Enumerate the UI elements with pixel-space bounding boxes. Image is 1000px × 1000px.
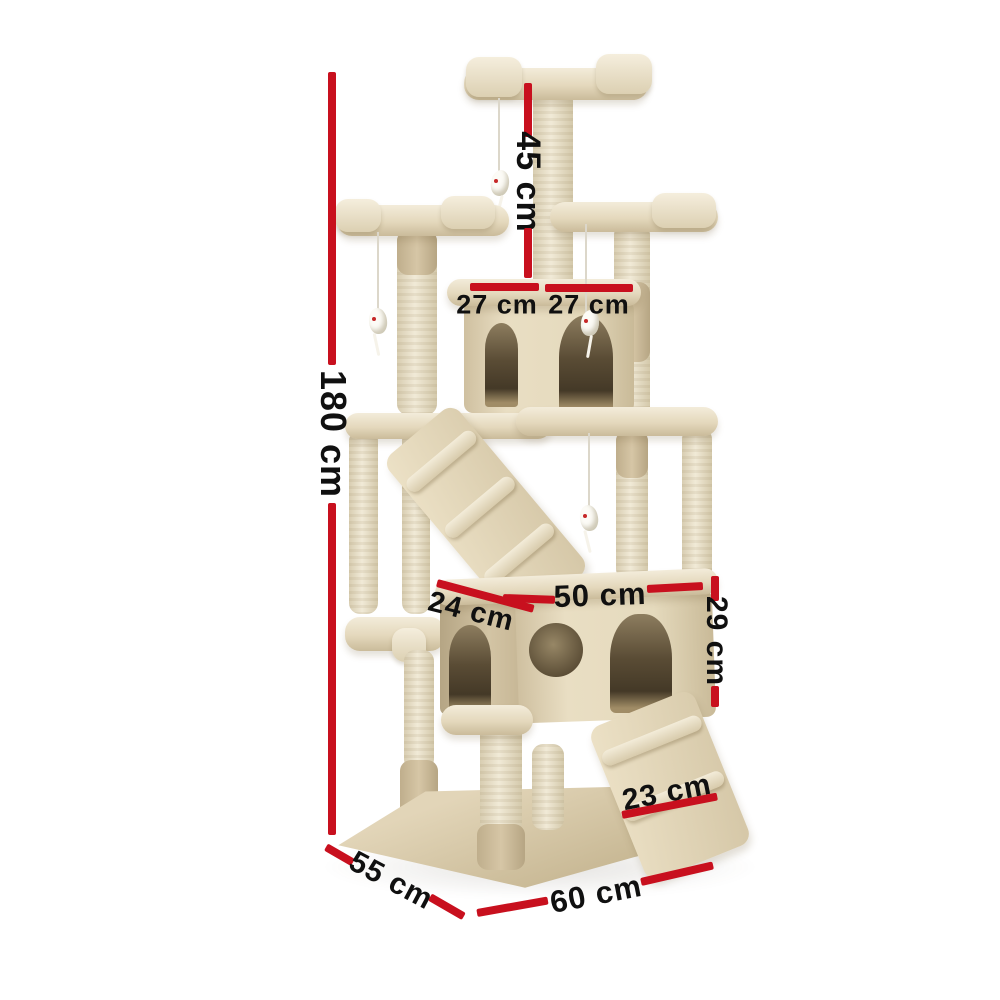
scratching-post-base-center — [480, 722, 522, 834]
right-perch-bumper-right — [652, 193, 716, 228]
scratching-post-mid-right-b — [682, 428, 712, 582]
dim-line-total-height-upper — [328, 72, 336, 365]
hanging-mouse-toy — [366, 308, 390, 358]
condo-entrance-side — [449, 625, 491, 714]
condo-entrance-left — [485, 323, 518, 407]
condo-step — [441, 705, 533, 735]
scratching-post-base-right — [532, 744, 564, 830]
dim-label-perch-right-width: 27 cm — [548, 292, 630, 319]
toy-string — [588, 433, 590, 507]
mouse-eye — [372, 317, 376, 321]
post-plush-sock — [477, 824, 525, 870]
ramp-cleat — [442, 474, 519, 542]
mouse-tail — [583, 530, 591, 553]
ramp-cleat — [403, 427, 480, 495]
toy-string — [498, 98, 500, 173]
dim-line-top-post-lower — [524, 228, 532, 278]
mouse-tail — [373, 333, 381, 356]
mouse-eye — [584, 319, 588, 323]
dim-label-perch-left-width: 27 cm — [456, 292, 538, 319]
dim-label-condo-width: 50 cm — [553, 578, 647, 612]
left-perch-bumper-mid — [441, 196, 495, 229]
left-perch-bumper-left — [335, 199, 381, 232]
dim-label-total-height: 180 cm — [315, 370, 351, 498]
post-plush-band — [616, 430, 648, 478]
mid-platform-right — [516, 407, 718, 436]
toy-string — [377, 232, 379, 310]
product-dimension-image: 180 cm 45 cm 27 cm 27 cm 24 cm 50 cm 29 … — [0, 0, 1000, 1000]
mouse-body — [368, 307, 389, 335]
top-perch-bumper-left — [466, 57, 522, 97]
peek-hole — [529, 623, 583, 677]
post-plush-band — [397, 230, 437, 275]
top-perch-bumper-right — [596, 54, 652, 94]
mouse-body — [578, 504, 599, 532]
dim-line-total-height-lower — [328, 503, 336, 835]
dim-dash-base-width — [476, 897, 548, 917]
mouse-eye — [583, 514, 587, 518]
mouse-tail — [586, 335, 593, 358]
dim-dash-base-depth-b — [428, 894, 466, 920]
mouse-body — [489, 169, 510, 197]
dim-line-condo-height-lower — [711, 686, 719, 707]
scratching-post-lower-left — [404, 650, 434, 770]
dim-label-condo-height: 29 cm — [701, 596, 731, 686]
dim-label-top-post-height: 45 cm — [511, 131, 545, 232]
mouse-eye — [494, 179, 498, 183]
dim-line-top-post-upper — [524, 83, 532, 137]
hanging-mouse-toy — [577, 505, 601, 555]
ramp-cleat — [600, 714, 704, 768]
